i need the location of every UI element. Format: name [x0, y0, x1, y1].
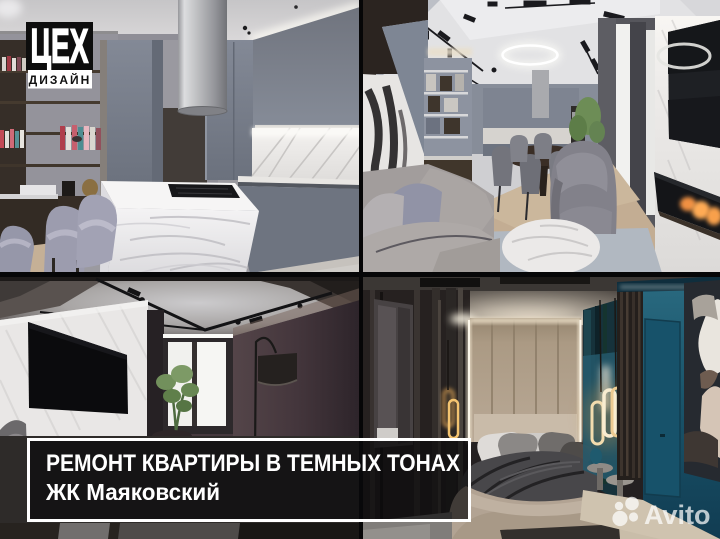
svg-text:ДИЗАЙН: ДИЗАЙН: [29, 72, 92, 87]
svg-text:ЖК Маяковский: ЖК Маяковский: [45, 479, 220, 505]
svg-text:РЕМОНТ КВАРТИРЫ В ТЕМНЫХ ТОНАХ: РЕМОНТ КВАРТИРЫ В ТЕМНЫХ ТОНАХ: [46, 450, 460, 477]
svg-text:ЦЕХ: ЦЕХ: [30, 20, 88, 74]
svg-text:Avito: Avito: [644, 500, 711, 530]
